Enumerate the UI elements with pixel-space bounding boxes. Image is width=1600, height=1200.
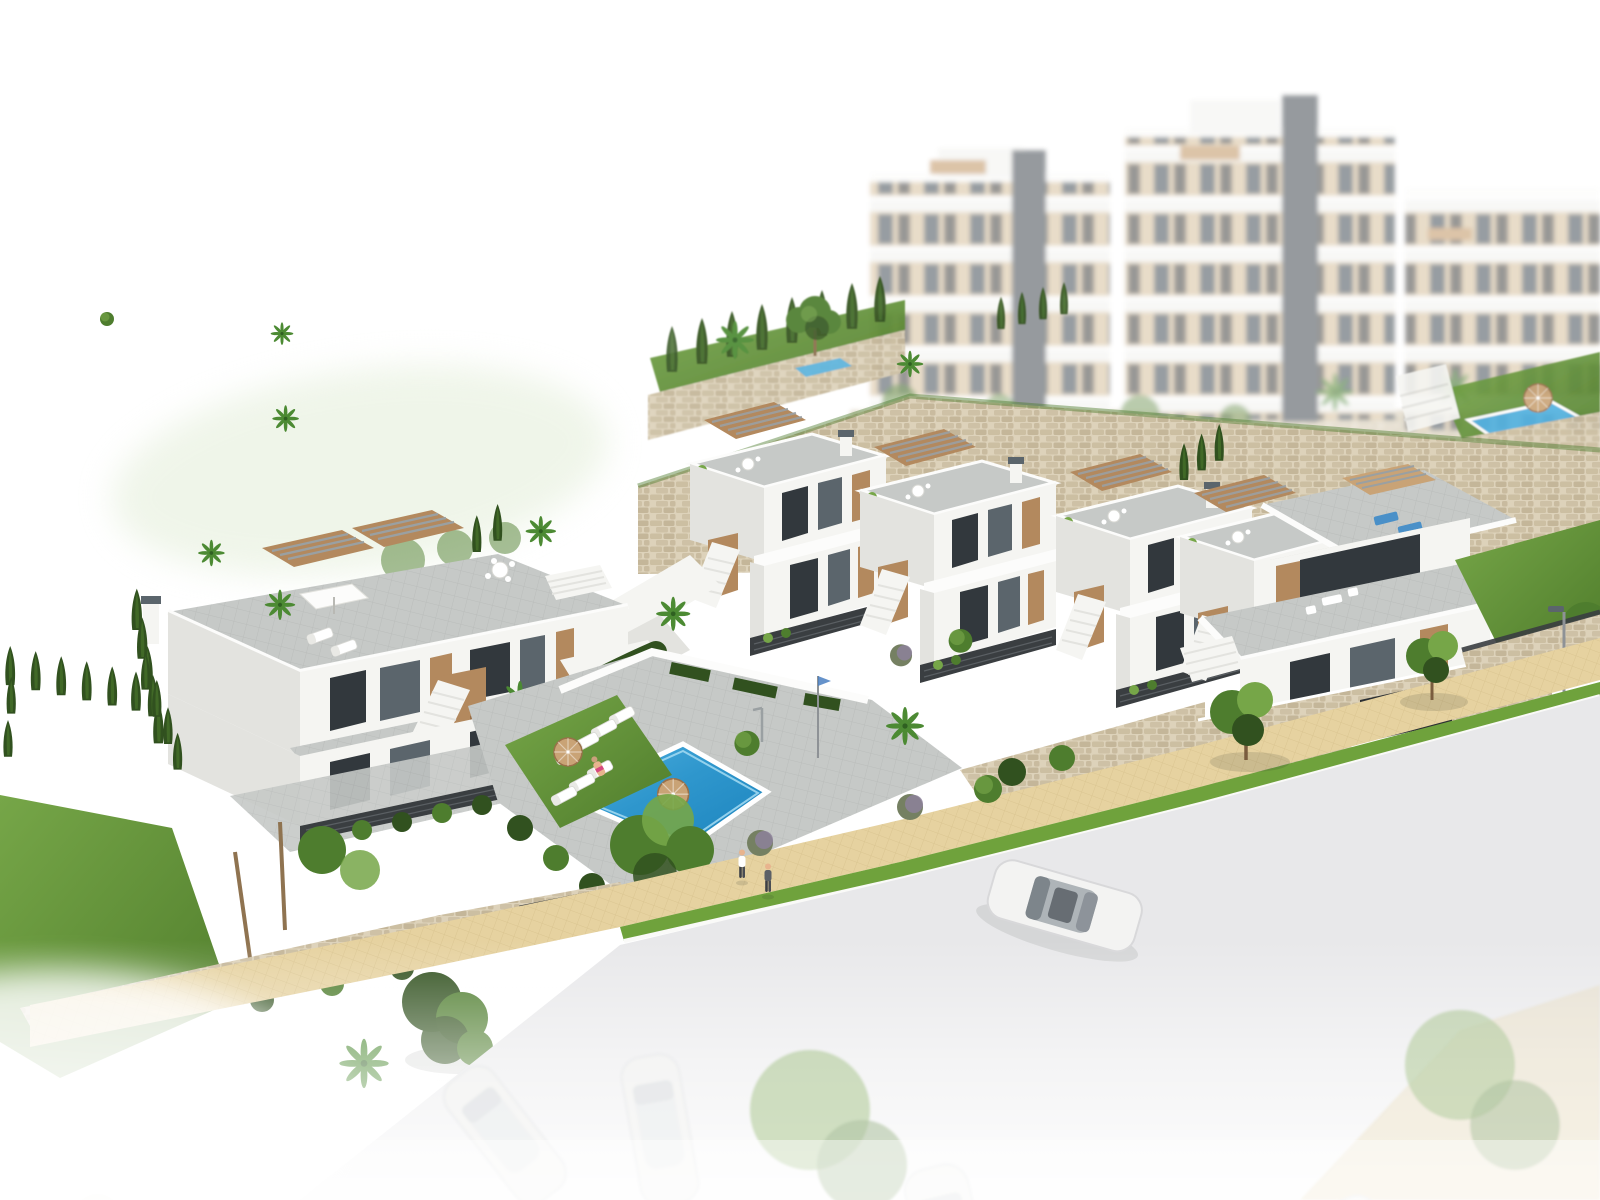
- render-canvas: [0, 0, 1600, 1200]
- window: [330, 670, 366, 731]
- palm-tree: [716, 321, 754, 359]
- potted-palm: [886, 707, 924, 745]
- potted-palm: [656, 597, 690, 631]
- architectural-render: [0, 0, 1600, 1200]
- roof-dining-table: [492, 562, 508, 578]
- pool-umbrella: [554, 738, 582, 766]
- window: [380, 660, 420, 721]
- window: [520, 635, 545, 690]
- potted-palm: [526, 516, 556, 546]
- pool-umbrella: [1524, 384, 1552, 412]
- fade-overlay: [0, 1140, 1600, 1200]
